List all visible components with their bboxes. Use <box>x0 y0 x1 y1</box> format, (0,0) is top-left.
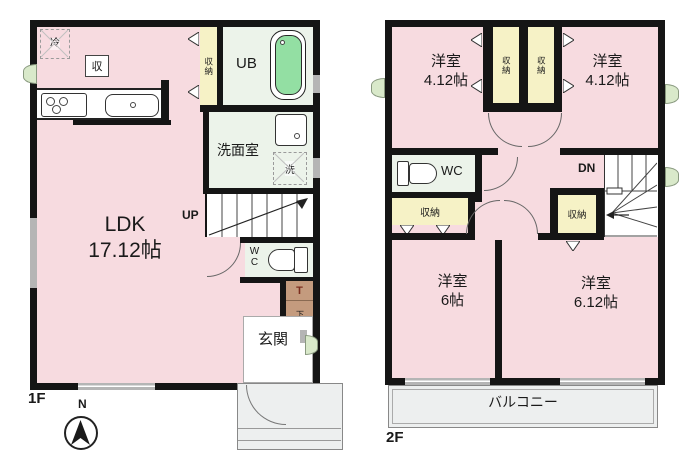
door-arc-bedroom-br <box>504 200 538 234</box>
awning-window-right-2f-top <box>665 84 679 104</box>
closet-door-chevron-icon <box>188 85 199 99</box>
wc-label-1f: WC <box>249 246 259 268</box>
toilet-tank-2f <box>397 161 409 186</box>
compass <box>64 416 98 450</box>
bathtub <box>270 30 306 100</box>
bedroom-tr-name: 洋室 <box>560 53 655 72</box>
bedroom-bl-size: 6帖 <box>410 292 495 311</box>
awning-window-left-2f <box>371 78 385 98</box>
storage-small-box: 収 <box>85 55 109 77</box>
toilet-bowl-2f <box>409 163 437 184</box>
closet-door-chevron-icon <box>563 33 574 47</box>
sink-drain-icon <box>130 102 136 108</box>
bedroom-bl-label: 洋室 6帖 <box>410 273 495 311</box>
door-arc-hall <box>207 243 241 277</box>
toilet-bowl-1f <box>268 249 295 271</box>
compass-needle-icon <box>66 418 95 447</box>
storage-small-label: 収 <box>92 58 103 74</box>
window-bottom-2f-left <box>405 378 490 385</box>
counter-stub-wall <box>73 120 171 125</box>
kitchen-counter <box>37 88 167 120</box>
stove-burner-icon <box>59 97 68 106</box>
ldk-label: LDK 17.12帖 <box>55 212 195 265</box>
washing-machine-space: 洗 <box>273 152 307 185</box>
wc-label-2f: WC <box>441 164 463 179</box>
porch-step-line <box>238 428 341 429</box>
window-bottom-2f-right <box>560 378 645 385</box>
balcony: バルコニー <box>388 385 658 428</box>
toilet-tank-1f <box>294 247 308 273</box>
bathtub-drain-icon <box>280 40 285 45</box>
closet-mid: 収納 <box>392 198 468 225</box>
closet-door-chevron-icon <box>471 33 482 47</box>
stove <box>41 93 87 117</box>
dn-label: DN <box>578 162 595 176</box>
bathtub-inner <box>275 35 302 95</box>
wc-room-1f: WC <box>245 243 313 277</box>
washroom-sink <box>275 114 307 146</box>
wall-below-closet-mid <box>392 233 475 240</box>
floor2-label: 2F <box>386 429 404 446</box>
window-right-1f-bath <box>313 75 320 93</box>
window-left-1f <box>30 218 37 288</box>
closet-mid-label: 収納 <box>420 204 440 219</box>
washroom: 洗面室 洗 <box>209 112 313 188</box>
closet-top-right: 収納 <box>528 27 554 103</box>
door-arc-bedroom-tr <box>528 113 562 147</box>
wall-below-bedroom-tl <box>392 148 498 155</box>
compass-north-label: N <box>78 398 87 412</box>
wc-right-wall-2f <box>475 150 482 202</box>
bedroom-tr-size: 4.12帖 <box>560 72 655 91</box>
unit-bath-room: UB <box>223 27 313 105</box>
door-arc-hall-2f <box>484 157 518 191</box>
bedroom-br-label: 洋室 6.12帖 <box>540 275 652 313</box>
bedroom-tr-label: 洋室 4.12帖 <box>560 53 655 91</box>
closet-stairs: 収納 <box>558 195 596 233</box>
closet-door-chevron-icon <box>188 32 199 46</box>
fridge-space: 冷 <box>40 29 70 59</box>
entrance-label: 玄関 <box>258 331 288 348</box>
wall-below-ub <box>200 105 313 112</box>
staircase-1f <box>205 194 313 237</box>
bedroom-bl-name: 洋室 <box>410 273 495 292</box>
fridge-cross-icon <box>41 30 68 57</box>
awning-window-left-1f <box>23 64 37 84</box>
staircase-2f <box>604 155 658 237</box>
porch-door-arc <box>246 385 286 425</box>
kitchen-sink <box>105 94 159 117</box>
window-right-1f-washroom <box>313 158 320 178</box>
closet-strip-label: 収納 <box>204 57 213 76</box>
counter-end-post <box>161 80 169 120</box>
wall-below-bedroom-tr <box>560 148 658 155</box>
closet-door-chevron-icon <box>471 79 482 93</box>
closet-top-left: 収納 <box>493 27 519 103</box>
shoe-t-box: T <box>286 281 313 301</box>
bedroom-br-name: 洋室 <box>540 275 652 294</box>
bedroom-br-size: 6.12帖 <box>540 294 652 313</box>
up-label: UP <box>182 209 199 223</box>
entrance-hall: 玄関 <box>243 316 313 383</box>
washroom-sink-drain-icon <box>294 133 300 139</box>
closet-strip: 収納 <box>200 27 217 105</box>
window-bottom-1f <box>78 383 155 390</box>
shoe-t-label: T <box>296 285 303 297</box>
floor1-plan: 冷 収 LDK 17.12帖 収納 UB 洗面室 <box>30 20 320 390</box>
unit-bath-label: UB <box>236 55 257 72</box>
stove-burner-icon <box>52 105 61 114</box>
balcony-label: バルコニー <box>389 392 657 412</box>
ldk-size: 17.12帖 <box>55 238 195 264</box>
door-arc-bedroom-tl <box>488 113 522 147</box>
floor2-plan: 洋室 4.12帖 収納 収納 洋室 4.12帖 WC <box>385 20 665 385</box>
ldk-name: LDK <box>55 212 195 238</box>
bedroom-divider-wall <box>495 240 502 378</box>
staircase-winder-icon <box>605 155 657 237</box>
washroom-label: 洗面室 <box>217 142 259 158</box>
awning-window-right-2f-stairs <box>665 167 679 187</box>
staircase-treads-icon <box>207 194 313 237</box>
washer-cross-icon <box>274 153 304 182</box>
porch <box>237 383 343 450</box>
floor1-label: 1F <box>28 390 46 407</box>
porch-step-line <box>238 440 341 441</box>
wc-room-2f: WC <box>392 155 475 192</box>
closet-stairs-label: 収納 <box>567 207 586 221</box>
closet-top-left-label: 収納 <box>502 56 511 75</box>
bedroom-tl-name: 洋室 <box>400 53 492 72</box>
floor-plan-canvas: 冷 収 LDK 17.12帖 収納 UB 洗面室 <box>0 0 699 464</box>
closet-top-right-label: 収納 <box>537 56 546 75</box>
folding-door-chevron-icon <box>566 241 580 251</box>
